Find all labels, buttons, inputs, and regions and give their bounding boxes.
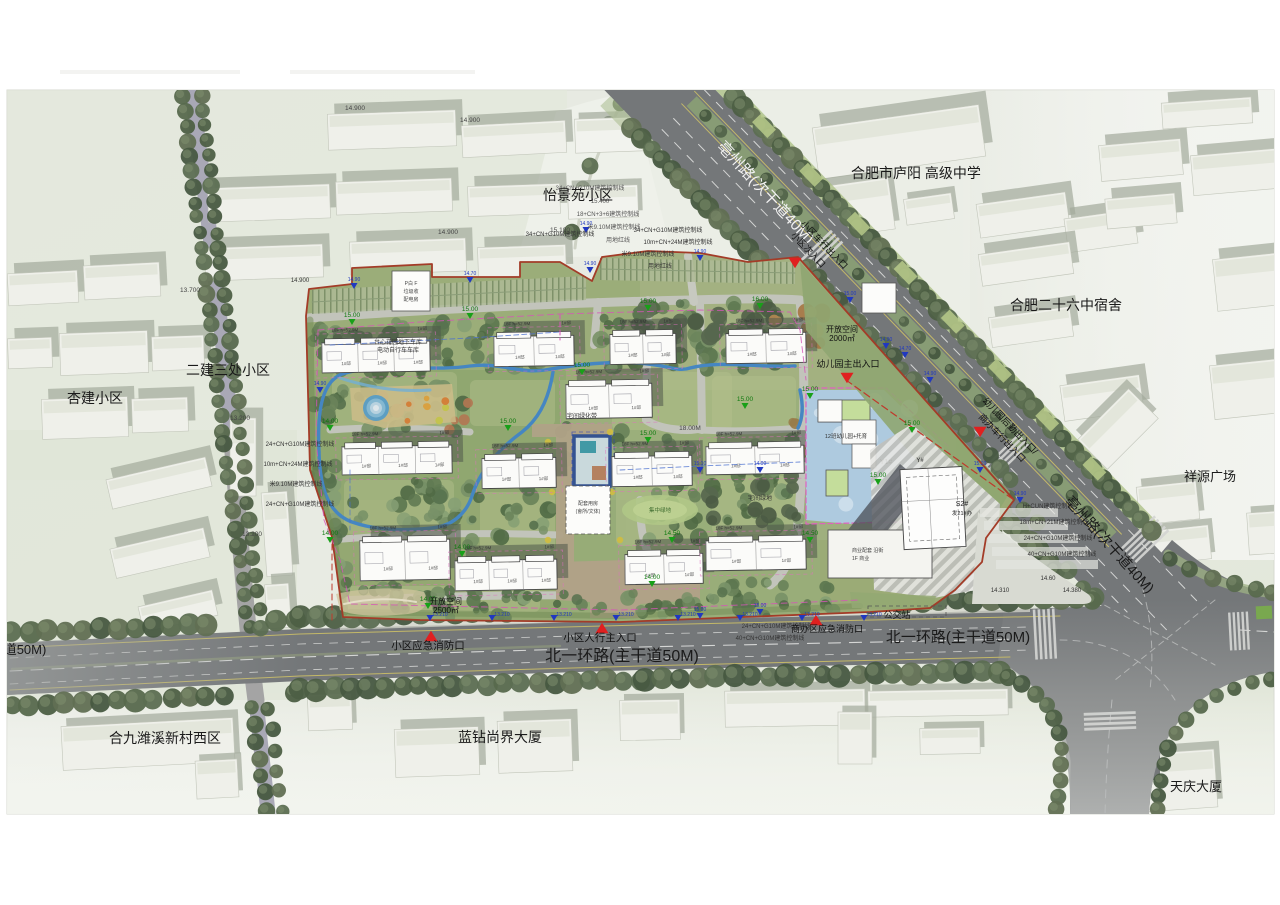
svg-text:18F h=52.9M: 18F h=52.9M [715, 431, 742, 436]
svg-text:14.900: 14.900 [345, 105, 365, 112]
svg-text:14.50: 14.50 [802, 530, 819, 537]
svg-text:18F h=52.9M: 18F h=52.9M [715, 525, 742, 530]
svg-text:杏建小区: 杏建小区 [67, 390, 123, 406]
svg-text:14.900: 14.900 [438, 229, 458, 236]
svg-text:13.210: 13.210 [680, 612, 696, 618]
svg-text:18F h=52.9M: 18F h=52.9M [491, 443, 518, 448]
svg-text:10m+CN+24M建筑控制线: 10m+CN+24M建筑控制线 [643, 238, 712, 246]
svg-text:18F h=52.9M: 18F h=52.9M [735, 318, 762, 323]
svg-text:15.00: 15.00 [462, 306, 479, 313]
svg-text:18F h=52.9M: 18F h=52.9M [634, 539, 661, 544]
svg-text:怡景苑小区: 怡景苑小区 [543, 187, 613, 203]
svg-text:13.200: 13.200 [230, 415, 250, 422]
svg-text:公交站: 公交站 [883, 609, 910, 620]
svg-text:15.00: 15.00 [754, 603, 767, 609]
svg-text:电动自行车车库: 电动自行车车库 [377, 346, 419, 354]
svg-text:商业配套 沿街: 商业配套 沿街 [852, 547, 883, 554]
svg-text:15.00: 15.00 [574, 362, 591, 369]
svg-text:合九潍溪新村西区: 合九潍溪新村西区 [109, 730, 221, 746]
svg-text:祥源广场: 祥源广场 [1184, 469, 1236, 484]
svg-text:15.00: 15.00 [640, 298, 657, 305]
svg-text:开放空间: 开放空间 [430, 596, 462, 606]
svg-text:18F h=52.9M: 18F h=52.9M [503, 321, 530, 326]
svg-text:米9.10M建筑控制线: 米9.10M建筑控制线 [622, 250, 675, 258]
svg-text:14.380: 14.380 [1063, 588, 1082, 594]
svg-text:15.10: 15.10 [974, 461, 987, 467]
svg-text:14.900: 14.900 [460, 117, 480, 124]
svg-text:用地红线: 用地红线 [648, 262, 672, 270]
svg-text:15.00: 15.00 [904, 420, 921, 427]
svg-text:14.90: 14.90 [314, 381, 327, 387]
svg-text:S2#: S2# [956, 501, 969, 508]
svg-text:14.70: 14.70 [464, 271, 477, 277]
svg-text:(會所/文体): (會所/文体) [576, 508, 601, 515]
svg-text:13.210: 13.210 [804, 612, 820, 618]
svg-text:商办区应急消防口: 商办区应急消防口 [791, 623, 863, 634]
svg-text:发21#办: 发21#办 [952, 509, 973, 517]
svg-text:配套用房: 配套用房 [578, 500, 598, 507]
svg-text:14.90: 14.90 [1014, 491, 1027, 497]
svg-text:二建三处小区: 二建三处小区 [186, 362, 270, 378]
svg-text:14.90: 14.90 [880, 337, 893, 343]
svg-text:15.00: 15.00 [870, 472, 887, 479]
svg-text:13.700: 13.700 [180, 287, 200, 294]
svg-text:14.90: 14.90 [584, 261, 597, 267]
svg-text:台心花园地下车库: 台心花园地下车库 [374, 338, 422, 346]
svg-text:13.210: 13.210 [556, 612, 572, 618]
svg-text:北一环路(主干道50M): 北一环路(主干道50M) [545, 647, 699, 665]
svg-text:14.70: 14.70 [899, 346, 912, 352]
svg-text:18F h=52.9M: 18F h=52.9M [621, 441, 648, 446]
svg-text:14.900: 14.900 [291, 278, 310, 284]
svg-text:14.60: 14.60 [1040, 576, 1056, 582]
svg-text:天庆大厦: 天庆大厦 [1170, 779, 1222, 794]
svg-text:24+CN+G10M建筑控制线: 24+CN+G10M建筑控制线 [266, 440, 335, 448]
svg-text:13.210: 13.210 [742, 612, 758, 618]
svg-text:13.210: 13.210 [618, 612, 634, 618]
svg-text:14.00: 14.00 [322, 418, 339, 425]
svg-text:P白 F: P白 F [405, 280, 418, 287]
svg-text:18F h=52.9M: 18F h=52.9M [619, 319, 646, 324]
svg-text:18+CN+3+6建筑控制线: 18+CN+3+6建筑控制线 [577, 210, 640, 218]
svg-text:15.00: 15.00 [802, 386, 819, 393]
svg-text:宅间绿化带: 宅间绿化带 [567, 412, 597, 420]
svg-text:Y#: Y# [916, 458, 924, 464]
svg-text:14.90: 14.90 [348, 277, 361, 283]
svg-text:米9.10M建筑控制线: 米9.10M建筑控制线 [588, 223, 641, 231]
svg-text:用地红线: 用地红线 [606, 236, 630, 244]
svg-text:15.00: 15.00 [344, 312, 361, 319]
svg-text:14.00: 14.00 [322, 530, 339, 537]
svg-text:15.00: 15.00 [640, 430, 657, 437]
svg-text:2000㎡: 2000㎡ [829, 334, 855, 343]
svg-text:24+CN+G10M建筑控制线: 24+CN+G10M建筑控制线 [266, 500, 335, 508]
svg-text:10m+CN+24M建筑控制线: 10m+CN+24M建筑控制线 [263, 460, 332, 468]
svg-text:小区人行主入口: 小区人行主入口 [563, 631, 637, 644]
svg-text:蓝钻尚界大厦: 蓝钻尚界大厦 [458, 729, 542, 745]
svg-text:米9.10M建筑控制线: 米9.10M建筑控制线 [270, 480, 323, 488]
svg-text:14.50: 14.50 [664, 530, 681, 537]
svg-text:道50M): 道50M) [4, 642, 47, 657]
svg-text:14.00: 14.00 [644, 574, 661, 581]
svg-text:合肥二十六中宿舍: 合肥二十六中宿舍 [1010, 297, 1122, 313]
svg-text:15.10: 15.10 [694, 461, 707, 467]
svg-text:幼儿园主出入口: 幼儿园主出入口 [816, 358, 879, 369]
svg-text:15.00: 15.00 [500, 418, 517, 425]
svg-text:合肥市庐阳 高级中学: 合肥市庐阳 高级中学 [851, 165, 981, 181]
svg-text:40+CN+G10M建筑控制线: 40+CN+G10M建筑控制线 [1028, 550, 1097, 558]
svg-text:12班幼儿园+托育: 12班幼儿园+托育 [825, 432, 868, 440]
svg-text:1F 商业: 1F 商业 [852, 555, 869, 562]
svg-text:34+CN+G10M建筑控制线: 34+CN+G10M建筑控制线 [634, 226, 703, 234]
svg-text:24+CN+G10M建筑控制线: 24+CN+G10M建筑控制线 [1024, 534, 1093, 542]
svg-text:14.00: 14.00 [454, 544, 471, 551]
svg-text:宅间绿地: 宅间绿地 [748, 494, 772, 502]
svg-text:18F h=52.9M: 18F h=52.9M [331, 327, 358, 332]
svg-text:配电房: 配电房 [403, 296, 418, 303]
svg-text:13.200: 13.200 [242, 531, 262, 538]
svg-text:13.210: 13.210 [494, 612, 510, 618]
svg-text:15.00: 15.00 [737, 396, 754, 403]
svg-text:14.310: 14.310 [991, 588, 1010, 594]
svg-text:16.00: 16.00 [752, 296, 769, 303]
svg-text:2500㎡: 2500㎡ [433, 606, 459, 615]
svg-text:开放空间: 开放空间 [826, 324, 858, 334]
svg-text:14.90: 14.90 [924, 371, 937, 377]
svg-text:18.00M: 18.00M [679, 425, 701, 432]
svg-text:18F h=52.9M: 18F h=52.9M [352, 431, 379, 436]
svg-text:北一环路(主干道50M): 北一环路(主干道50M) [886, 629, 1030, 646]
svg-text:18F h=52.9M: 18F h=52.9M [369, 525, 396, 530]
svg-text:垃圾收: 垃圾收 [403, 288, 418, 295]
svg-text:40+CN+G10M建筑控制线: 40+CN+G10M建筑控制线 [736, 634, 805, 642]
svg-text:15.100: 15.100 [550, 227, 570, 234]
svg-text:14.90: 14.90 [754, 461, 767, 467]
svg-text:小区应急消防口: 小区应急消防口 [391, 639, 465, 652]
svg-text:14.90: 14.90 [694, 249, 707, 255]
svg-text:15.00: 15.00 [844, 291, 857, 297]
